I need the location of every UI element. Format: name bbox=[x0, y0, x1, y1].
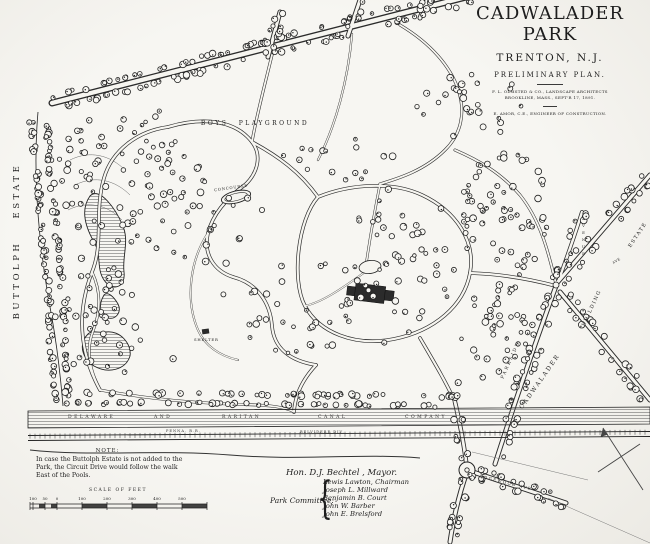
mayor-line: Hon. D.J. Bechtel , Mayor. bbox=[286, 468, 397, 478]
property-lines bbox=[472, 452, 650, 543]
compass-rose-icon bbox=[598, 428, 643, 490]
scale-tick: 400 bbox=[153, 496, 161, 501]
shelter-label: SHELTER bbox=[194, 337, 219, 342]
scale-label: SCALE OF FEET bbox=[72, 488, 164, 493]
shelter-building bbox=[202, 328, 210, 334]
committee-member: John W. Barber bbox=[323, 502, 409, 510]
canal-label-word: CANAL bbox=[318, 415, 347, 420]
scale-tick: 100 bbox=[29, 496, 37, 501]
scale-tick: 100 bbox=[78, 496, 86, 501]
park-plan-scan: CADWALADER PARK TRENTON, N.J. PRELIMINAR… bbox=[0, 0, 650, 544]
committee-member: Joseph L. Millward bbox=[323, 486, 409, 494]
plan-type: PRELIMINARY PLAN. bbox=[452, 71, 648, 79]
canal-label-word: RARITAN bbox=[222, 415, 261, 420]
scale-tick: 50 bbox=[42, 496, 47, 501]
scale-tick: 0 bbox=[56, 496, 59, 501]
scale-tick: 300 bbox=[128, 496, 136, 501]
canal-label-word: COMPANY bbox=[405, 415, 447, 420]
committee-member: Lewis Lawton, Chairman bbox=[323, 478, 409, 486]
buttolph-estate-label: BUTTOLPH ESTATE bbox=[12, 146, 22, 336]
credit-date: BROOKLINE, MASS., SEPT'R 17, 1891. bbox=[452, 95, 648, 101]
canal-label-word: DELAWARE bbox=[68, 415, 115, 420]
scale-tick: 200 bbox=[103, 496, 111, 501]
railroad-label: PENNA. R.R. bbox=[166, 429, 201, 433]
forecourt-oval bbox=[358, 259, 382, 275]
railroad-division-label: BELVIDERE DIV. bbox=[300, 430, 345, 434]
scale-bar bbox=[30, 502, 207, 510]
credit-engineer: E. AMOR, C.E., ENGINEER OF CONSTRUCTION. bbox=[452, 111, 648, 117]
boys-playground-label: BOYS PLAYGROUND bbox=[200, 120, 310, 127]
page-title: CADWALADER PARK bbox=[452, 3, 648, 45]
ornament-rule bbox=[537, 84, 563, 85]
scale-tick: 500 bbox=[178, 496, 186, 501]
mansion-building bbox=[346, 282, 395, 305]
ornament-rule bbox=[543, 106, 557, 107]
city-subtitle: TRENTON, N.J. bbox=[452, 52, 648, 64]
committee-member: John E. Brelsford bbox=[323, 510, 409, 518]
title-block: CADWALADER PARK TRENTON, N.J. PRELIMINAR… bbox=[452, 3, 648, 117]
canal-label-word: AND bbox=[154, 415, 172, 420]
avenue-label: AVENUE bbox=[581, 216, 586, 258]
note-heading: NOTE: bbox=[60, 448, 155, 454]
road-junction bbox=[553, 282, 559, 288]
committee-member: Benjamin B. Court bbox=[323, 494, 409, 502]
committee-names: Lewis Lawton, Chairman Joseph L. Millwar… bbox=[323, 478, 409, 518]
note-body: In case the Buttolph Estate is not added… bbox=[36, 456, 186, 480]
